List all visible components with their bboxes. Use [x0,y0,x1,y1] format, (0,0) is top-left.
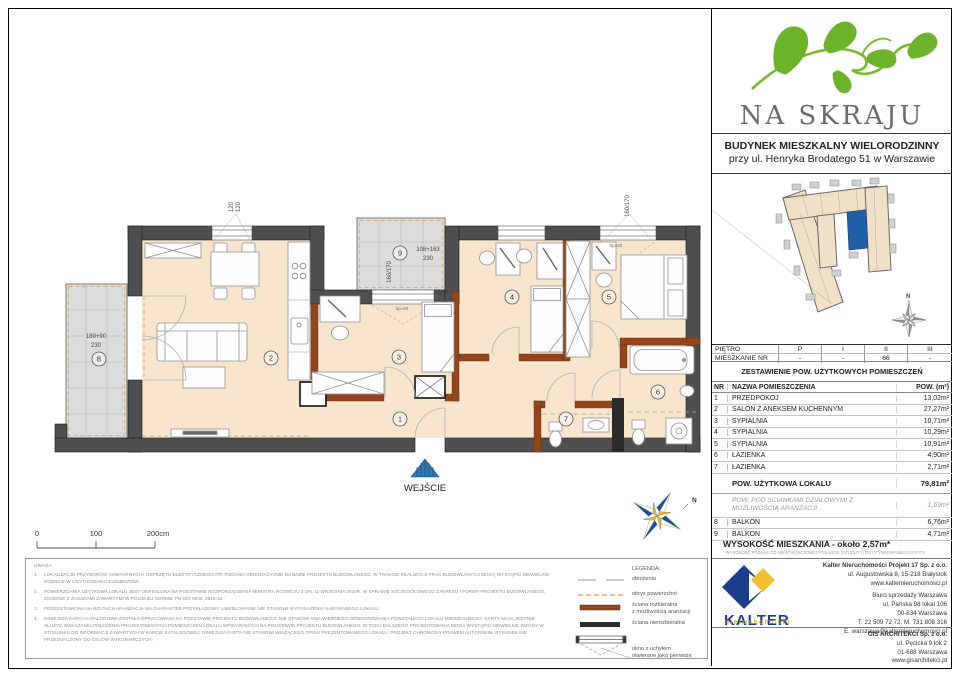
sink7-icon [583,418,609,432]
kalter-logo-sub: nieruchomości [725,619,791,626]
catalog-sheet: 1 2 3 4 5 6 7 8 9 120 120 180+90 230 108… [0,0,960,678]
coffee-table-icon [183,367,225,388]
gis-addr1: ul. Pęcicka 9 lok 2 [868,640,947,649]
toilet7-icon [549,422,562,447]
note-item: 2. POWIERZCHNIA UŻYTKOWA LOKALU JEST OKR… [34,589,554,603]
dim-win-right: 160/170 [625,195,631,217]
legend-title: LEGENDA: [632,566,660,572]
kalter-office-addr2: 00-834 Warszawa [823,610,947,619]
floor-label: PIĘTRO [712,345,778,354]
area-row: 7ŁAZIENKA2,71m² [712,462,952,474]
notes-legend-box: UWAGA: 1. LOKALIZACJE PRZYBORÓW SANITARN… [25,558,708,659]
legend-item: okno z uchyłemotwierane jako pierwsze [632,646,692,659]
kalter-logo: KALTER nieruchomości [720,562,820,628]
legend-window-icon [576,636,630,658]
area-row: 8BALKON6,76m² [712,518,952,530]
legend-item: ściana rozbieralnaz możliwością aranżacj… [632,602,690,615]
toilet6-icon [632,420,645,445]
hall-wardrobe-icon [312,372,384,394]
room-7-label: 7 [564,415,568,424]
kalter-office-addr1: ul. Pańska 98 lokal 106 [823,601,947,610]
floor-plan: 1 2 3 4 5 6 7 8 9 120 120 180+90 230 108… [0,0,710,556]
height-text: WYSOKOŚĆ MIESZKANIA - około 2,57m* [723,539,960,549]
kalter-logo-icon [720,562,784,612]
dim-balc9-2: 230 [423,256,434,262]
kalter-address: Kalter Nieruchomości Projekt 17 Sp. z o.… [823,562,947,636]
note-item: 3. PRZEDSTAWIONA NA RZUTACH ARANŻACJA MA… [34,606,554,613]
bed-room3-icon [422,302,454,372]
area-total-row: POW. UŻYTKOWA LOKALU 79,81m² [712,474,952,494]
gis-company: GIS ARCHITEKCI Sp. z o.o. [868,631,947,640]
hp-label-2: hp=60 [610,243,623,248]
dim-win-left-2: 120 [236,201,242,212]
legend-item: ściana nierozbieralna [632,620,685,627]
wardrobe-room5-icon [566,241,590,357]
note-item: 4. NINIEJSZA KARTA KATALOGOWA ZOSTAŁA OP… [34,616,554,643]
sofa-icon [157,323,247,361]
building-info-line2: przy ul. Henryka Brodatego 51 w Warszawi… [712,153,952,165]
floor-col: I [821,345,864,354]
area-table-header: NR NAZWA POMIESZCZENIA POW. (m²) [712,382,952,393]
kalter-company: Kalter Nieruchomości Projekt 17 Sp. z o.… [823,562,947,571]
site-map: N [712,174,952,344]
gis-web: www.gisarchitekci.pl [868,657,947,666]
entrance-label: WEJŚCIE [404,482,446,494]
entrance-marker: WEJŚCIE [404,459,446,494]
floor-table: PIĘTRO P I II III MIESZKANIE NR - - 66 - [712,344,952,362]
room-2-label: 2 [269,354,273,363]
developer-block: KALTER nieruchomości Kalter Nieruchomośc… [712,558,952,628]
kitchen-counter-icon [288,242,310,380]
dim-balc9-rot: 160/170 [387,261,393,283]
legend-item: obrys powierzchni [632,591,677,598]
building-info-line1: BUDYNEK MIESZKALNY WIELORODZINNY [712,140,952,152]
gis-addr2: 01-688 Warszawa [868,649,947,658]
washing-machine-icon [666,418,692,444]
scale-100: 100 [90,529,103,538]
kalter-addr1: ul. Augustowska 8, 15-218 Białystok [823,571,947,580]
room-3-label: 3 [397,353,401,362]
hp-label-1: hp=60 [396,306,409,311]
area-row: 6ŁAZIENKA4,90m² [712,451,952,463]
scale-0: 0 [35,529,39,538]
area-row: 3SYPIALNIA10,71m² [712,416,952,428]
building-info: BUDYNEK MIESZKALNY WIELORODZINNY przy ul… [712,133,952,173]
brand-name: NA SKRAJU [712,101,952,131]
compass-north-label: N [692,497,697,504]
dim-balc8-1: 180+90 [86,334,107,340]
area-table-title: ZESTAWIENIE POW. UŻYTKOWYCH POMIESZCZEŃ [712,362,952,382]
area-row: 5SYPIALNIA10,91m² [712,439,952,451]
bathtub-icon [630,346,694,374]
floor-col: II [864,345,907,354]
brand-section: NA SKRAJU [712,9,952,133]
scale-200: 200cm [147,529,170,538]
notes: UWAGA: 1. LOKALIZACJE PRZYBORÓW SANITARN… [34,563,554,647]
architect-block: GIS ARCHITEKCI Sp. z o.o. ul. Pęcicka 9 … [712,627,952,667]
area-row: 1PRZEDPOKÓJ13,02m² [712,393,952,405]
ivy-logo-icon [712,9,952,104]
height-footnote: * WYSOKOŚĆ PODANA OD NIEWYKOŃCZONEJ POSA… [723,550,960,555]
gis-address: GIS ARCHITEKCI Sp. z o.o. ul. Pęcicka 9 … [868,631,947,666]
area-row: 4SYPIALNIA10,29m² [712,428,952,440]
room-4-label: 4 [510,293,514,302]
legend-glyphs [574,572,630,664]
room-6-label: 6 [656,388,660,397]
area-table: NR NAZWA POMIESZCZENIA POW. (m²) 1PRZEDP… [712,382,952,541]
legend-black-wall-icon [580,622,620,627]
note-item: 1. LOKALIZACJE PRZYBORÓW SANITARNYCH I O… [34,572,554,586]
sink6-icon [680,386,694,397]
room-8-label: 8 [97,355,101,364]
site-compass-icon [892,303,926,337]
room-9-label: 9 [398,249,402,258]
height-info: WYSOKOŚĆ MIESZKANIA - około 2,57m* * WYS… [712,539,960,555]
legend-item: obniżenia [632,576,656,583]
salon-wardrobe-icon [145,243,201,258]
highlighted-unit [847,210,868,250]
area-row: 2SALON Z ANEKSEM KUCHENNYM27,27m² [712,405,952,417]
partition-area-row: POW. POD ŚCIANKAMI DZIAŁOWYMI Z MOŻLIWOŚ… [712,494,952,518]
scale-bar: 0 100 200cm [35,529,169,548]
tv-stand-icon [171,429,229,437]
room-1-label: 1 [398,415,402,424]
legend-brown-wall-icon [580,605,620,610]
site-map-section: N [712,173,952,345]
compass-icon [620,479,694,553]
kalter-office: Biuro sprzedaży Warszawa [823,592,947,601]
floor-col: III [907,345,952,354]
notes-title: UWAGA: [34,563,554,570]
kalter-web: www.kalternieruchomosci.pl [823,580,947,589]
dim-balc8-2: 230 [91,343,102,349]
room-5-label: 5 [607,293,611,302]
title-block-panel: NA SKRAJU BUDYNEK MIESZKALNY WIELORODZIN… [711,9,952,666]
bed-room4-icon [531,286,563,352]
dim-balc9-1: 108+163 [416,247,440,253]
floor-col: P [778,345,821,354]
dim-win-left-1: 120 [229,201,235,212]
double-bed-icon [621,255,687,319]
site-compass-north-label: N [906,294,910,300]
